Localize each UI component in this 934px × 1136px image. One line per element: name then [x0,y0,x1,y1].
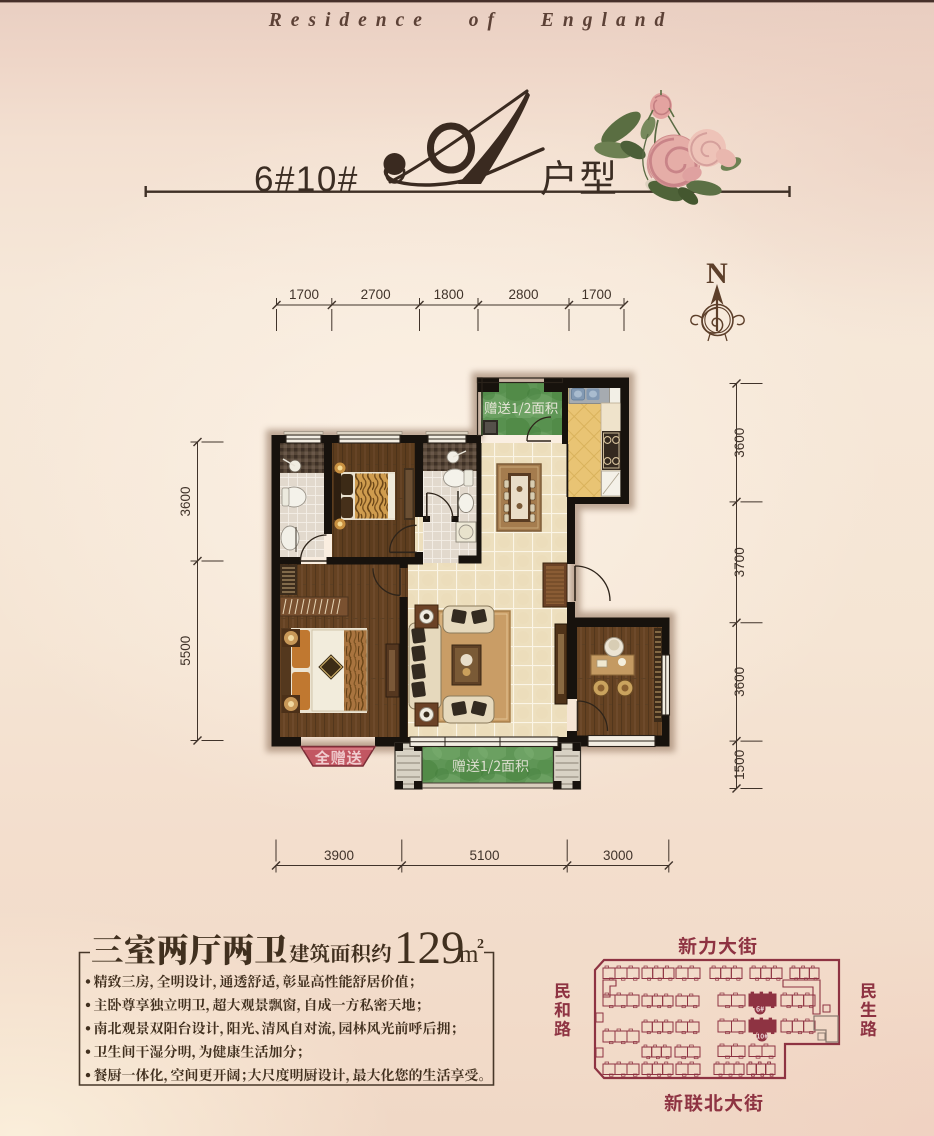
svg-text:5500: 5500 [178,636,193,666]
svg-text:3700: 3700 [732,547,747,577]
svg-text:Residence of England: Residence of England [268,10,674,31]
svg-text:1800: 1800 [434,287,464,302]
svg-text:m: m [459,941,479,968]
svg-text:3600: 3600 [178,486,193,516]
svg-text:2700: 2700 [361,287,391,302]
svg-text:3000: 3000 [603,848,633,863]
svg-text:3900: 3900 [324,848,354,863]
svg-text:5100: 5100 [469,848,499,863]
svg-text:1700: 1700 [289,287,319,302]
svg-text:6#10#: 6#10# [254,160,359,199]
svg-text:2: 2 [477,937,484,952]
svg-text:3600: 3600 [732,667,747,697]
svg-text:1700: 1700 [581,287,611,302]
svg-text:1500: 1500 [732,750,747,780]
svg-text:129: 129 [394,922,465,974]
svg-text:3600: 3600 [732,428,747,458]
svg-text:2800: 2800 [508,287,538,302]
